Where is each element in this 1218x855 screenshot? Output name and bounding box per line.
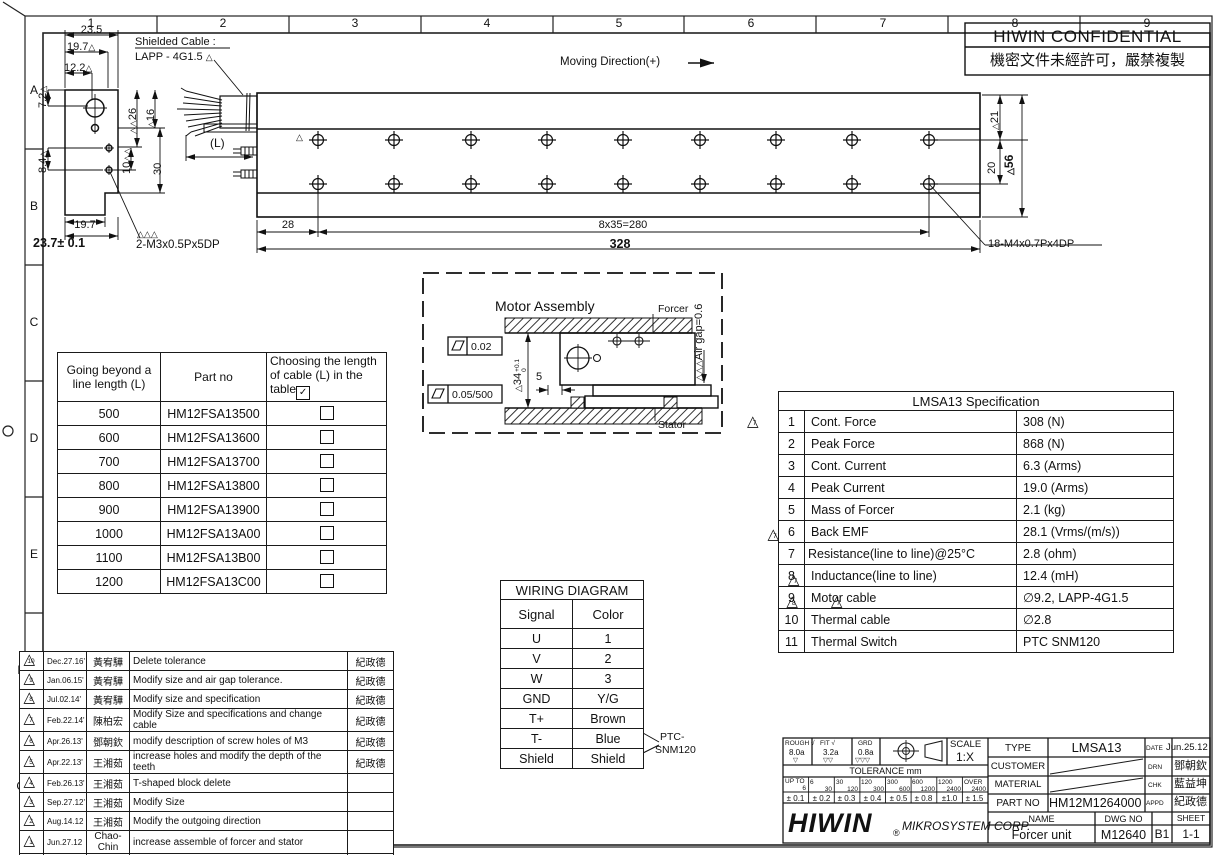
table-row: 6Back EMF28.1 (Vrms/(m/s)) [779, 521, 1174, 543]
row-checkbox[interactable] [320, 502, 334, 516]
table-row: V2 [501, 649, 644, 669]
tol-value: ± 0.1 [783, 794, 808, 803]
table-row: 5Mass of Forcer2.1 (kg) [779, 499, 1174, 521]
tol-range-b: 2400 [962, 786, 986, 793]
table-row: 1200HM12FSA13C00 [58, 570, 387, 594]
tol-range-b: 30 [810, 786, 832, 793]
row-checkbox[interactable] [320, 574, 334, 588]
material-label: MATERIAL [988, 780, 1048, 791]
name-label: NAME [988, 814, 1095, 824]
dim-8-4: 8.4△ [37, 151, 50, 173]
revision-flag: △8 [24, 690, 40, 705]
appd-label: APPD [1146, 800, 1164, 807]
logo-registered-icon: ® [893, 828, 900, 838]
revision-flag: △7 [831, 594, 847, 609]
tolerance-stack: +0.10 [515, 359, 528, 372]
tol-range-b: 120 [835, 786, 858, 793]
table-row: T+Brown [501, 709, 644, 729]
side-view-drawing [65, 90, 118, 215]
triangle-icon: △ [88, 42, 95, 52]
table-row: △1Jun.27.12Chao-Chinincrease assemble of… [20, 831, 394, 854]
screw-note-m4: 18-M4x0.7Px4DP [988, 238, 1074, 251]
dim-21: △21 [989, 111, 1002, 130]
table-row: △9Jan.06.15'黃宥驊Modify size and air gap t… [20, 671, 394, 690]
assembly-title: Motor Assembly [495, 298, 595, 314]
sheet-label: SHEET [1172, 814, 1210, 824]
revision-flag: △7 [24, 711, 40, 726]
cable-col2-header: Part no [161, 353, 267, 402]
table-row: △7Feb.22.14'陳柏宏Modify Size and specifica… [20, 709, 394, 732]
row-checkbox[interactable] [320, 406, 334, 420]
grid-number: 5 [599, 17, 639, 31]
table-row: 11Thermal SwitchPTC SNM120 [779, 631, 1174, 653]
dwg-label: DWG NO [1095, 814, 1152, 824]
customer-label: CUSTOMER [988, 762, 1048, 773]
dim-280: 8x35=280 [593, 219, 653, 232]
dim-34: △34+0.10 [512, 359, 528, 392]
tol-value: ± 0.4 [860, 794, 885, 803]
assembly-drawing [423, 273, 722, 433]
revision-flag: △2 [24, 812, 40, 827]
tol-range-b: 6 [784, 785, 806, 792]
triangle-icon: △ [146, 121, 156, 128]
cable-col1-header: Going beyond a line length (L) [58, 353, 161, 402]
spec-table: LMSA13 Specification 1Cont. Force308 (N)… [778, 391, 1174, 653]
table-row: 1Cont. Force308 (N) [779, 411, 1174, 433]
partno-value: HM12M1264000 [1049, 796, 1141, 810]
forcer-label: Forcer [658, 303, 688, 315]
cable-col3-header: Choosing the length of cable (L) in the … [267, 353, 387, 402]
fit-value: 3.2a [823, 748, 839, 757]
triangle-icon: △ [694, 360, 704, 367]
tol-value: ± 0.2 [809, 794, 834, 803]
dim-5: 5 [536, 371, 542, 384]
grd-label: GRD [858, 740, 872, 747]
dim-328: 328 [600, 237, 640, 251]
revision-flag: △5 [24, 753, 40, 768]
triangle-icon: △ [694, 374, 704, 381]
revision-flag: △3 [24, 793, 40, 808]
table-row: △2Aug.14.12王湘茹Modify the outgoing direct… [20, 812, 394, 831]
table-row: 4Peak Current19.0 (Arms) [779, 477, 1174, 499]
dim-28: 28 [273, 219, 303, 232]
tol-value: ± 0.3 [834, 794, 859, 803]
table-row: △10Dec.27.16'黃宥驊Delete tolerance紀政德 [20, 652, 394, 671]
grd-value: 0.8a [858, 748, 874, 757]
dim-23-5: 23.5 [65, 24, 118, 37]
row-checkbox[interactable] [320, 550, 334, 564]
triangle-icon: △ [694, 367, 704, 374]
type-label: TYPE [988, 743, 1048, 755]
revision-flag: △4 [24, 774, 40, 789]
table-row: GNDY/G [501, 689, 644, 709]
dim-7-2: 7.2△ [37, 86, 50, 108]
spec-table-title: LMSA13 Specification [779, 392, 1174, 411]
hiwin-logo: HIWIN [788, 808, 872, 839]
dim-26: △△26 [127, 108, 140, 134]
grid-number: 2 [203, 17, 243, 31]
cable-note-line2: LAPP - 4G1.5 △ [135, 51, 213, 64]
triangle-icon: △ [85, 63, 92, 73]
tol-range-b: 300 [861, 786, 884, 793]
rail-drawing [204, 93, 980, 217]
dim-20: 20 [986, 162, 999, 174]
appd-value: 紀政德 [1174, 796, 1207, 809]
table-row: 1100HM12FSA13B00 [58, 546, 387, 570]
fit-label: FIT √ [820, 740, 835, 747]
revision-flag: △10 [24, 652, 40, 667]
cable-length-label: (L) [210, 137, 225, 151]
table-row: 700HM12FSA13700 [58, 450, 387, 474]
row-checkbox[interactable] [320, 478, 334, 492]
triangle-icon: △ [144, 229, 151, 239]
flatness-value-1: 0.02 [471, 341, 491, 353]
table-row: △6Apr.26.13'鄧朝欽modify description of scr… [20, 732, 394, 751]
grid-letter: D [27, 432, 41, 446]
tol-range-b: 1200 [911, 786, 935, 793]
size-value: B1 [1152, 828, 1172, 842]
grid-letter: C [27, 316, 41, 330]
table-row: 600HM12FSA13600 [58, 426, 387, 450]
triangle-icon: △ [206, 52, 213, 62]
tol-value: ±1.0 [937, 794, 962, 803]
triangle-icon: △ [513, 385, 523, 392]
tol-value: ± 0.8 [911, 794, 936, 803]
grid-number: 3 [335, 17, 375, 31]
dim-23-7: 23.7± 0.1 [33, 236, 85, 250]
sheet-value: 1-1 [1172, 828, 1210, 842]
tol-range-b: 600 [886, 786, 910, 793]
wiring-title: WIRING DIAGRAM [501, 581, 644, 600]
rail-cable [177, 88, 253, 178]
table-row: 8Inductance(line to line)12.4 (mH) [779, 565, 1174, 587]
triangle-icon: △ [296, 132, 303, 142]
cable-note-line1: Shielded Cable : [135, 36, 216, 49]
screw-note-m3: 2-M3x0.5Px5DP [136, 239, 220, 252]
grid-number: 7 [863, 17, 903, 31]
partno-label: PART NO [988, 798, 1048, 810]
dwg-value: M12640 [1095, 828, 1152, 842]
wiring-table: WIRING DIAGRAM SignalColor U1 V2 W3 GNDY… [500, 580, 644, 769]
table-row: △8Jul.02.14'黃宥驊Modify size and specifica… [20, 690, 394, 709]
dim-12-2: 12.2△ [64, 62, 92, 75]
revision-flag: △7 [767, 527, 783, 542]
table-row: 900HM12FSA13900 [58, 498, 387, 522]
chk-label: CHK [1148, 782, 1162, 789]
table-row: △4Feb.26.13'王湘茹T-shaped block delete [20, 774, 394, 793]
header-checkbox-checked[interactable]: ✓ [296, 386, 310, 400]
ptc-label-line2: SNM120 [655, 744, 696, 756]
dim-30: 30 [152, 163, 165, 175]
revision-flag: △6 [24, 732, 40, 747]
dim-19-7-bottom: 19.7 [65, 219, 105, 232]
moving-direction-label: Moving Direction(+) [560, 56, 660, 69]
drawing-sheet: { "icons": { "triangle": "△", "check": "… [0, 0, 1218, 855]
dim-10: 10△△ [121, 148, 134, 174]
dim-16: △16 [145, 109, 158, 128]
table-row: 10Thermal cable∅2.8 [779, 609, 1174, 631]
chk-value: 藍益坤 [1174, 778, 1207, 791]
grid-number: 6 [731, 17, 771, 31]
table-row: 7Resistance(line to line)@25°C2.8 (ohm) [779, 543, 1174, 565]
revision-flag: △1 [24, 833, 40, 848]
tolerance-title: TOLERANCE mm [783, 766, 988, 776]
dim-56: △56 [1003, 155, 1017, 175]
revision-flag: △7 [747, 414, 763, 429]
table-row: 800HM12FSA13800 [58, 474, 387, 498]
grid-letter: B [27, 200, 41, 214]
tol-value: ± 0.5 [886, 794, 911, 803]
dim-19-7: 19.7△ [67, 41, 95, 54]
triangle-icon: △ [1005, 168, 1015, 175]
stator-label: Stator [658, 419, 686, 431]
triangle-icon: △ [38, 151, 48, 158]
grid-letter: E [27, 548, 41, 562]
type-value: LMSA13 [1048, 741, 1145, 756]
table-row: ShieldShield [501, 749, 644, 769]
triangle-icon: △ [38, 86, 48, 93]
cable-length-table: Going beyond a line length (L) Part no C… [57, 352, 387, 594]
row-checkbox[interactable] [320, 454, 334, 468]
date-value: Jun.25.12 [1166, 743, 1208, 754]
table-row: △3Sep.27.12'王湘茹Modify Size [20, 793, 394, 812]
flatness-value-2: 0.05/500 [452, 389, 493, 401]
table-row: 2Peak Force868 (N) [779, 433, 1174, 455]
triangle-icon: △ [122, 148, 132, 155]
confidential-subtitle: 機密文件未經許可，嚴禁複製 [965, 52, 1210, 69]
table-row: SignalColor [501, 600, 644, 629]
table-row: W3 [501, 669, 644, 689]
revision-flag: △9 [24, 671, 40, 686]
grd-marks: ▽▽▽ [855, 757, 870, 764]
table-row: △5Apr.22.13'王湘茹increase holes and modify… [20, 751, 394, 774]
revision-table: △10Dec.27.16'黃宥驊Delete tolerance紀政德 △9Ja… [19, 651, 394, 855]
rough-label: ROUGH √ [785, 740, 815, 747]
table-row: U1 [501, 629, 644, 649]
row-checkbox[interactable] [320, 430, 334, 444]
table-row: 1000HM12FSA13A00 [58, 522, 387, 546]
triangle-icon: △ [151, 229, 158, 239]
triangle-icon: △ [128, 120, 138, 127]
date-label: DATE [1146, 745, 1163, 752]
table-row: 3Cont. Current6.3 (Arms) [779, 455, 1174, 477]
table-row: 500HM12FSA13500 [58, 402, 387, 426]
grid-number: 4 [467, 17, 507, 31]
ptc-label-line1: PTC- [660, 731, 685, 743]
triangle-icon: △ [122, 155, 132, 162]
triangle-icon: △ [990, 123, 1000, 130]
drn-value: 鄧朝欽 [1174, 760, 1207, 773]
revision-flag: △8 [786, 594, 802, 609]
row-checkbox[interactable] [320, 526, 334, 540]
revision-flag: △7 [788, 572, 804, 587]
fit-marks: ▽▽ [823, 757, 833, 764]
rough-value: 8.0a [789, 748, 805, 757]
rough-marks: ▽ [793, 757, 798, 764]
rail-holes [309, 131, 938, 193]
tol-value: ± 1.5 [962, 794, 987, 803]
table-row: T-Blue [501, 729, 644, 749]
tol-range-b: 2400 [937, 786, 961, 793]
triangle-icon: △ [128, 127, 138, 134]
scale-value: 1:X [956, 751, 974, 765]
triangle-icon: △ [137, 229, 144, 239]
name-value: Forcer unit [988, 828, 1095, 842]
drn-label: DRN [1148, 764, 1162, 771]
air-gap-label: △△△Air gap=0.6 [693, 304, 706, 381]
confidential-title: HIWIN CONFIDENTIAL [965, 27, 1210, 47]
